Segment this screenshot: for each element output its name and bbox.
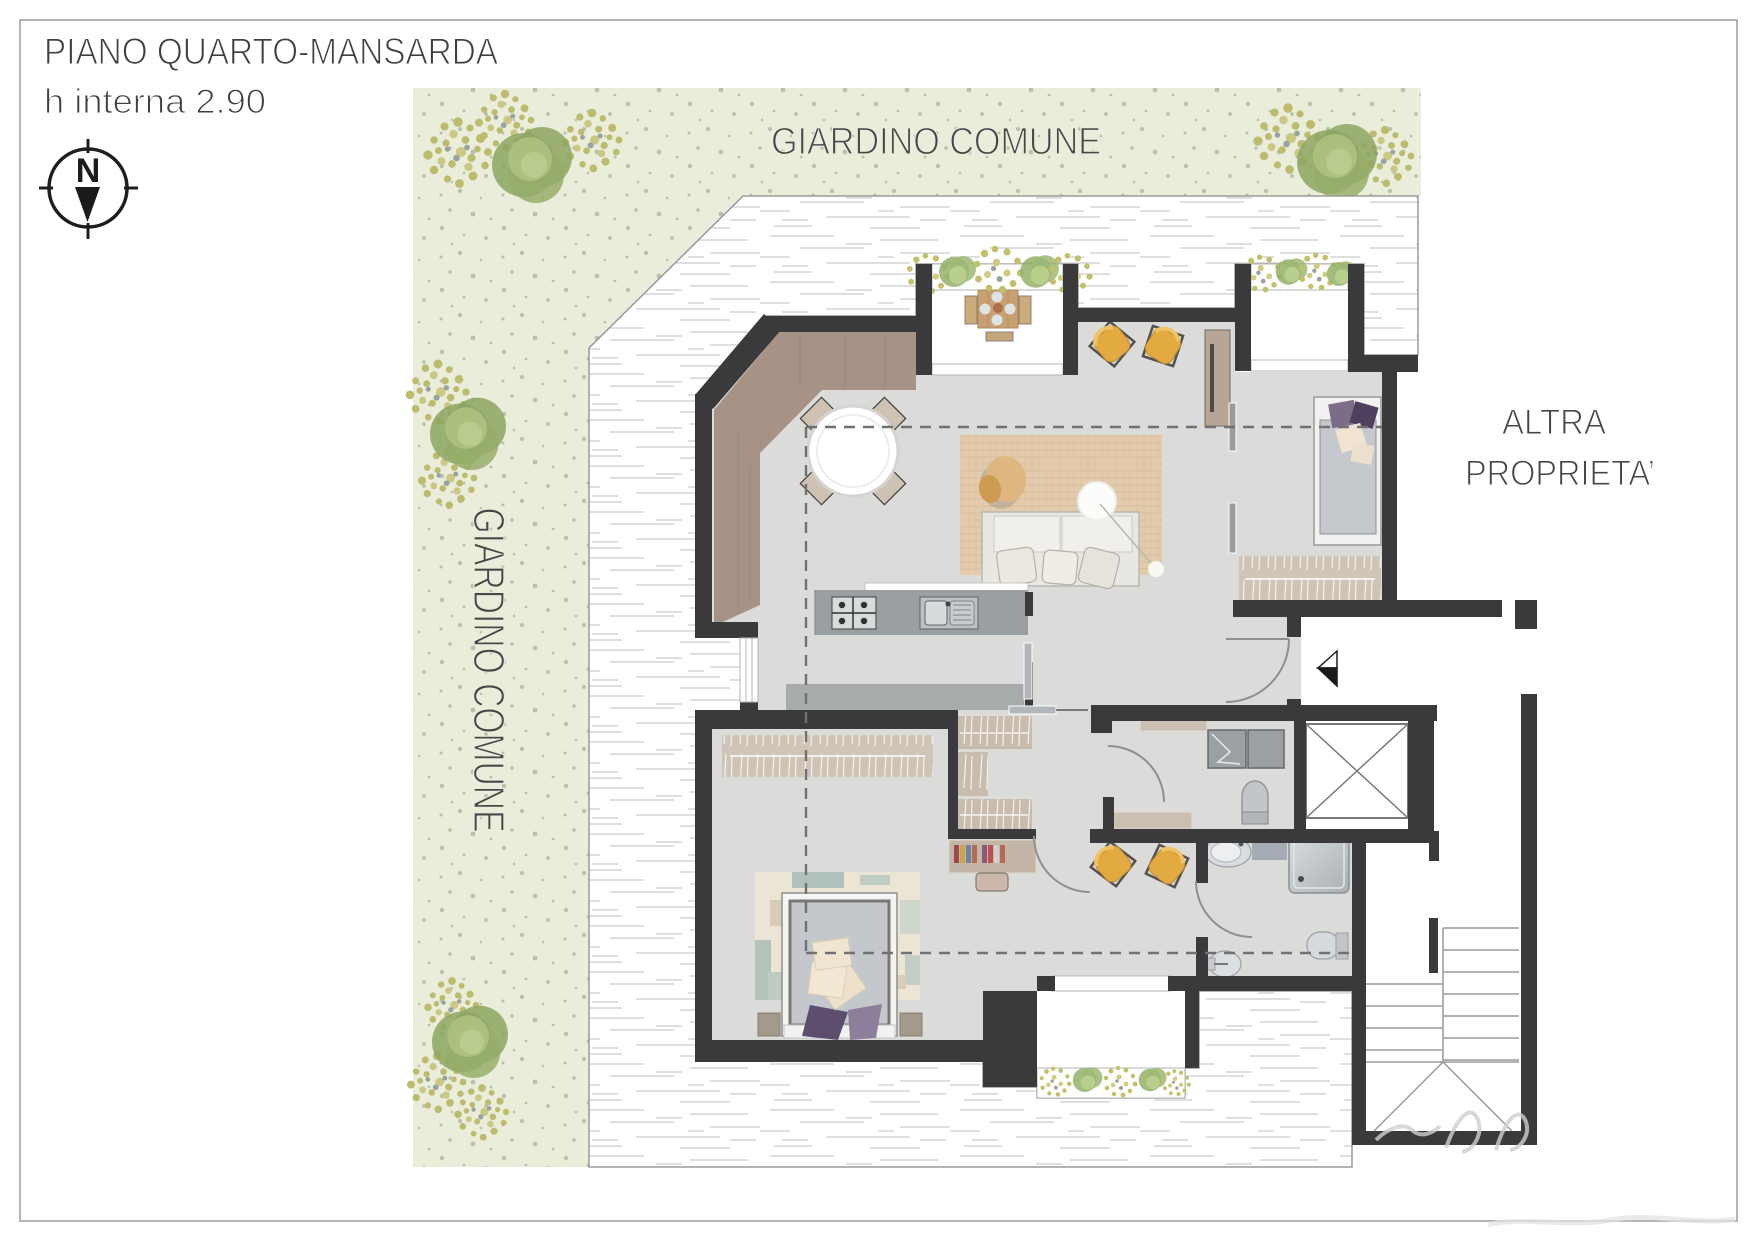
svg-text:PIANO QUARTO-MANSARDA: PIANO QUARTO-MANSARDA [44,31,498,72]
svg-text:N: N [76,152,101,190]
svg-text:PROPRIETA’: PROPRIETA’ [1465,454,1655,493]
svg-text:h interna 2.90: h interna 2.90 [44,83,266,121]
svg-text:ALTRA: ALTRA [1502,403,1607,442]
svg-text:GIARDINO COMUNE: GIARDINO COMUNE [464,508,513,833]
svg-text:GIARDINO COMUNE: GIARDINO COMUNE [771,121,1101,163]
